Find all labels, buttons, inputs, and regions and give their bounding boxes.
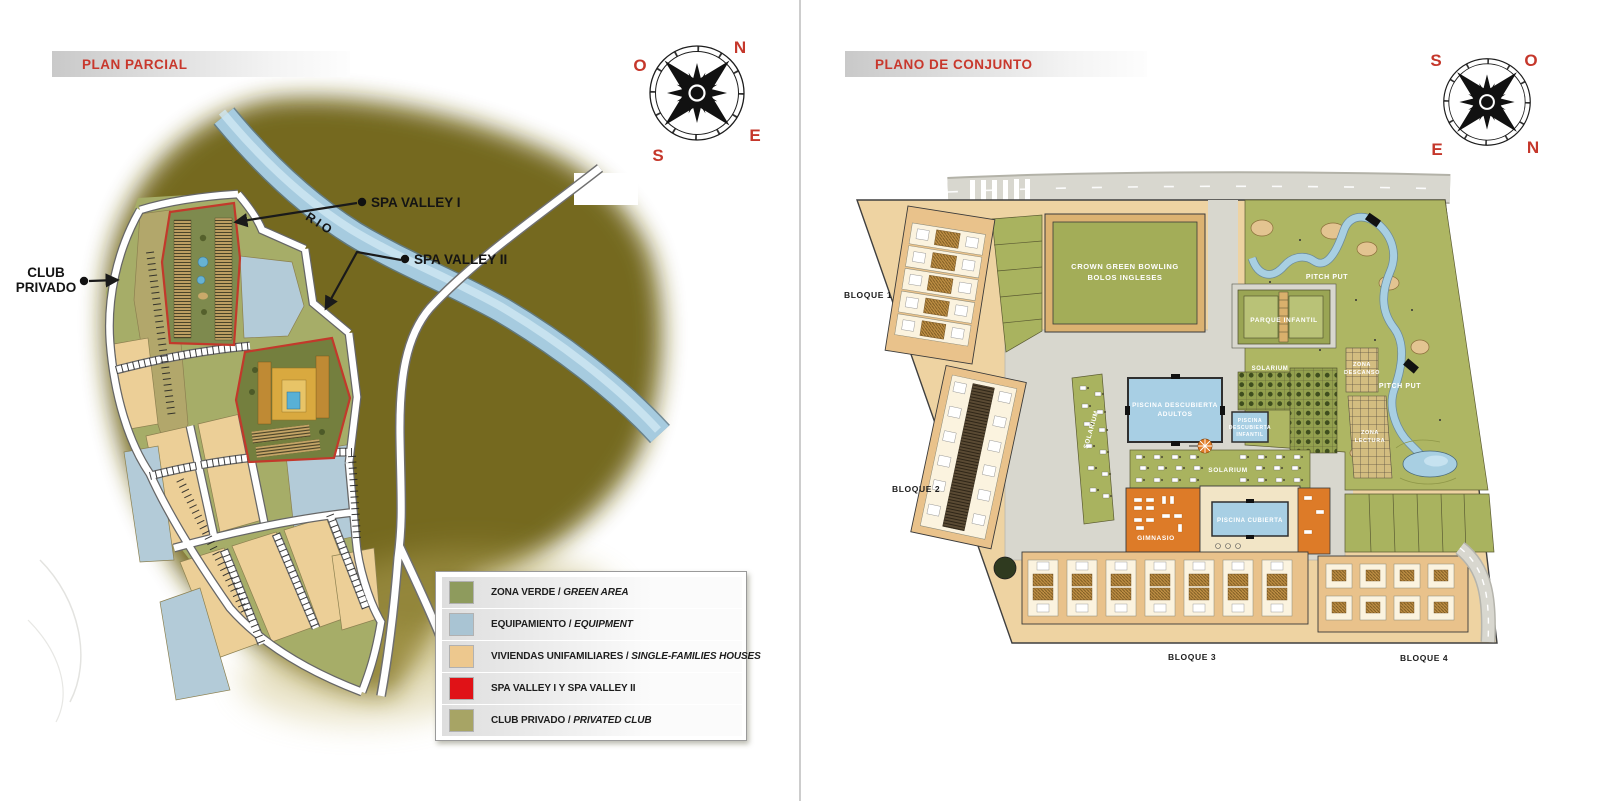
bowling-label: CROWN GREEN BOWLING bbox=[1071, 262, 1179, 271]
zona-lectura-label: LECTURA bbox=[1355, 438, 1385, 444]
legend-label: VIVIENDAS UNIFAMILIARES / SINGLE-FAMILIE… bbox=[491, 651, 761, 662]
legend-swatch bbox=[449, 613, 474, 636]
page-title: PLANO DE CONJUNTO bbox=[845, 57, 1033, 72]
callout-dot bbox=[80, 277, 88, 285]
plan-parcial-panel: SPA VALLEY I SPA VALLEY II CLUB PRIVADO … bbox=[0, 0, 800, 801]
legend-row-green-area: ZONA VERDE / GREEN AREA bbox=[442, 577, 742, 608]
bloque-4-building bbox=[1318, 556, 1468, 632]
bloque-3-building bbox=[1022, 552, 1308, 624]
page-title: PLAN PARCIAL bbox=[52, 57, 188, 72]
access-road-north bbox=[948, 179, 1450, 202]
compass-letter-s: S bbox=[1430, 51, 1441, 70]
solarium-label: SOLARIUM bbox=[1208, 467, 1247, 474]
piscina-descubierta-infantil: PISCINA DESCUBIERTA INFANTIL bbox=[1229, 412, 1271, 442]
zona-descanso-label: DESCANSO bbox=[1344, 370, 1380, 376]
spa-valley-1-label: SPA VALLEY I bbox=[371, 195, 461, 210]
compass-letter-o: O bbox=[633, 56, 646, 75]
piscina-adultos-label: ADULTOS bbox=[1157, 411, 1192, 418]
bloque-2-label: BLOQUE 2 bbox=[892, 484, 940, 494]
parque-infantil: PARQUE INFANTIL bbox=[1232, 284, 1336, 348]
legend-swatch bbox=[449, 581, 474, 604]
solarium-strip-central: SOLARIUM bbox=[1130, 450, 1310, 488]
piscina-infantil-label: PISCINA bbox=[1238, 418, 1262, 424]
compass-letter-s: S bbox=[652, 146, 663, 165]
bloque-1-label: BLOQUE 1 bbox=[844, 290, 892, 300]
legend-swatch bbox=[449, 677, 474, 700]
legend-row-spa-valley: SPA VALLEY I Y SPA VALLEY II bbox=[442, 673, 742, 704]
club-privado-label: CLUB bbox=[27, 265, 65, 280]
pitch-put-label: PITCH PUT bbox=[1379, 383, 1421, 390]
legend-swatch bbox=[449, 645, 474, 668]
legend-label: EQUIPAMIENTO / EQUIPMENT bbox=[491, 619, 633, 630]
legend-row-equipment: EQUIPAMIENTO / EQUIPMENT bbox=[442, 609, 742, 640]
green-strips-band bbox=[1345, 494, 1494, 552]
plano-conjunto-title-band: PLANO DE CONJUNTO bbox=[845, 51, 1147, 77]
legend-row-private-club: CLUB PRIVADO / PRIVATED CLUB bbox=[442, 705, 742, 736]
spa-valley-2-parcel bbox=[236, 338, 350, 462]
compass-rose: S O E N bbox=[1427, 42, 1547, 162]
piscina-descubierta-adultos: PISCINA DESCUBIERTA ADULTOS bbox=[1125, 374, 1225, 446]
masterplan-document: SPA VALLEY I SPA VALLEY II CLUB PRIVADO … bbox=[0, 0, 1600, 801]
piscina-cubierta-hall: PISCINA CUBIERTA bbox=[1200, 486, 1330, 554]
plan-parcial-title-band: PLAN PARCIAL bbox=[52, 51, 350, 77]
piscina-adultos-label: PISCINA DESCUBIERTA bbox=[1132, 402, 1218, 409]
compass-letter-o: O bbox=[1524, 51, 1537, 70]
plano-conjunto-map: CROWN GREEN BOWLING BOLOS INGLESES bbox=[800, 0, 1600, 801]
parque-infantil-label: PARQUE INFANTIL bbox=[1250, 317, 1317, 324]
bloque-3-label: BLOQUE 3 bbox=[1168, 652, 1216, 662]
gimnasio-label: GIMNASIO bbox=[1137, 535, 1175, 542]
gimnasio: GIMNASIO bbox=[1126, 488, 1200, 552]
compass-letter-e: E bbox=[749, 126, 760, 145]
piscina-cubierta-label: PISCINA CUBIERTA bbox=[1217, 518, 1283, 524]
legend: ZONA VERDE / GREEN AREA EQUIPAMIENTO / E… bbox=[435, 571, 747, 741]
compass-letter-n: N bbox=[734, 38, 746, 57]
bloque-4-label: BLOQUE 4 bbox=[1400, 653, 1448, 663]
solarium-label: SOLARIUM bbox=[1252, 366, 1289, 372]
zona-lectura: ZONA LECTURA bbox=[1348, 396, 1392, 478]
plano-conjunto-panel: CROWN GREEN BOWLING BOLOS INGLESES bbox=[800, 0, 1600, 801]
legend-label: ZONA VERDE / GREEN AREA bbox=[491, 587, 629, 598]
bowling-label: BOLOS INGLESES bbox=[1087, 273, 1162, 282]
legend-label: CLUB PRIVADO / PRIVATED CLUB bbox=[491, 715, 652, 726]
specimen-tree bbox=[994, 557, 1016, 579]
piscina-infantil-label: INFANTIL bbox=[1236, 432, 1263, 438]
legend-label: SPA VALLEY I Y SPA VALLEY II bbox=[491, 683, 635, 694]
pitch-put-label: PITCH PUT bbox=[1306, 274, 1348, 281]
bowling-green: CROWN GREEN BOWLING BOLOS INGLESES bbox=[1045, 214, 1205, 332]
callout-dot bbox=[358, 198, 366, 206]
spa-valley-2-label: SPA VALLEY II bbox=[414, 252, 507, 267]
compass-rose: N O E S bbox=[632, 28, 762, 165]
zona-descanso: ZONA DESCANSO bbox=[1344, 348, 1380, 392]
compass-letter-n: N bbox=[1527, 138, 1539, 157]
club-privado-label: PRIVADO bbox=[16, 280, 77, 295]
piscina-infantil-label: DESCUBIERTA bbox=[1229, 425, 1271, 431]
compass-letter-e: E bbox=[1431, 140, 1442, 159]
zona-lectura-label: ZONA bbox=[1361, 430, 1379, 436]
callout-dot bbox=[401, 255, 409, 263]
spa-valley-1-parcel bbox=[162, 203, 240, 345]
legend-row-single-family-houses: VIVIENDAS UNIFAMILIARES / SINGLE-FAMILIE… bbox=[442, 641, 742, 672]
legend-swatch bbox=[449, 709, 474, 732]
zona-descanso-label: ZONA bbox=[1353, 362, 1371, 368]
